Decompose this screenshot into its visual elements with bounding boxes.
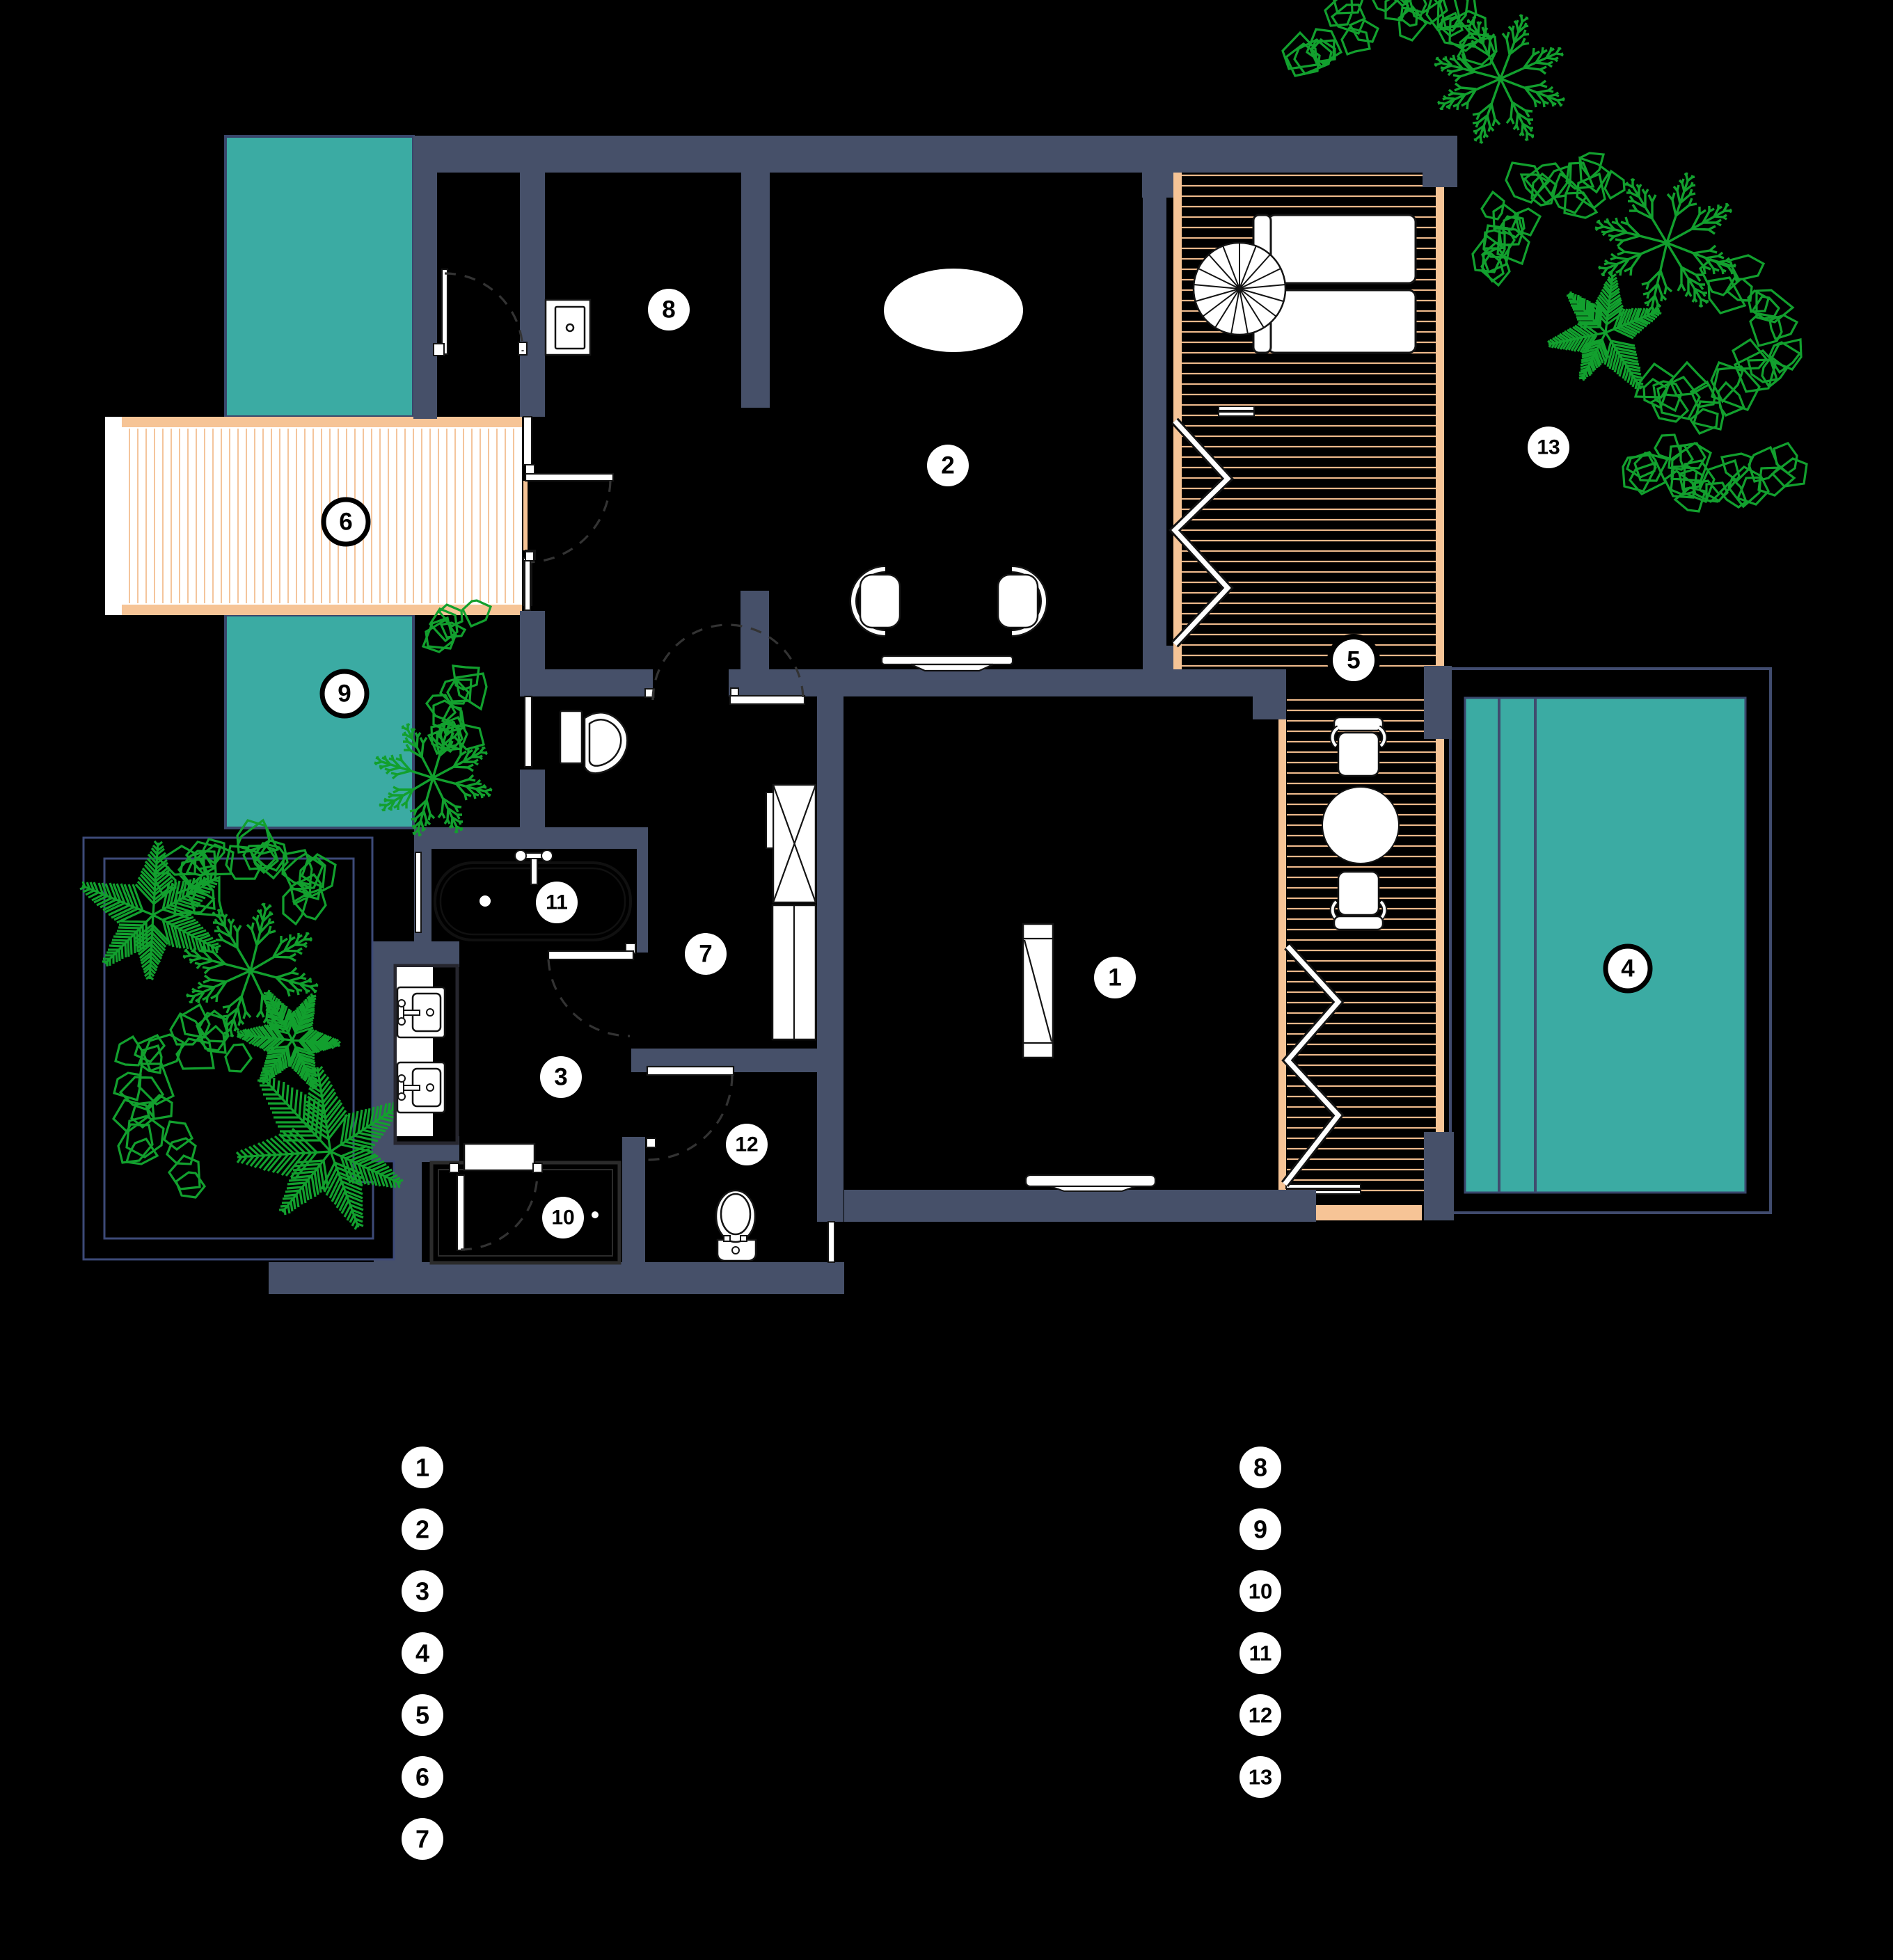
- svg-text:9: 9: [1253, 1515, 1267, 1544]
- svg-text:5: 5: [415, 1701, 429, 1730]
- svg-text:7: 7: [699, 941, 712, 968]
- svg-text:11: 11: [1249, 1641, 1272, 1666]
- svg-text:8: 8: [662, 296, 675, 324]
- svg-text:8: 8: [1253, 1453, 1267, 1482]
- svg-text:10: 10: [1249, 1579, 1272, 1604]
- svg-text:5: 5: [1347, 647, 1360, 674]
- svg-text:6: 6: [339, 509, 352, 536]
- svg-text:2: 2: [415, 1515, 429, 1544]
- svg-text:12: 12: [1249, 1703, 1272, 1728]
- svg-text:3: 3: [415, 1577, 429, 1606]
- svg-text:13: 13: [1537, 436, 1560, 459]
- svg-text:6: 6: [415, 1763, 429, 1792]
- svg-text:9: 9: [338, 680, 351, 708]
- svg-text:7: 7: [415, 1825, 429, 1854]
- svg-text:3: 3: [554, 1064, 567, 1091]
- svg-text:12: 12: [735, 1133, 758, 1156]
- svg-text:1: 1: [415, 1453, 429, 1482]
- svg-text:13: 13: [1249, 1765, 1272, 1790]
- svg-text:10: 10: [551, 1206, 574, 1229]
- svg-text:1: 1: [1108, 964, 1121, 991]
- svg-text:2: 2: [941, 452, 954, 479]
- svg-text:4: 4: [415, 1639, 429, 1668]
- svg-text:11: 11: [546, 891, 568, 914]
- svg-text:4: 4: [1621, 955, 1635, 982]
